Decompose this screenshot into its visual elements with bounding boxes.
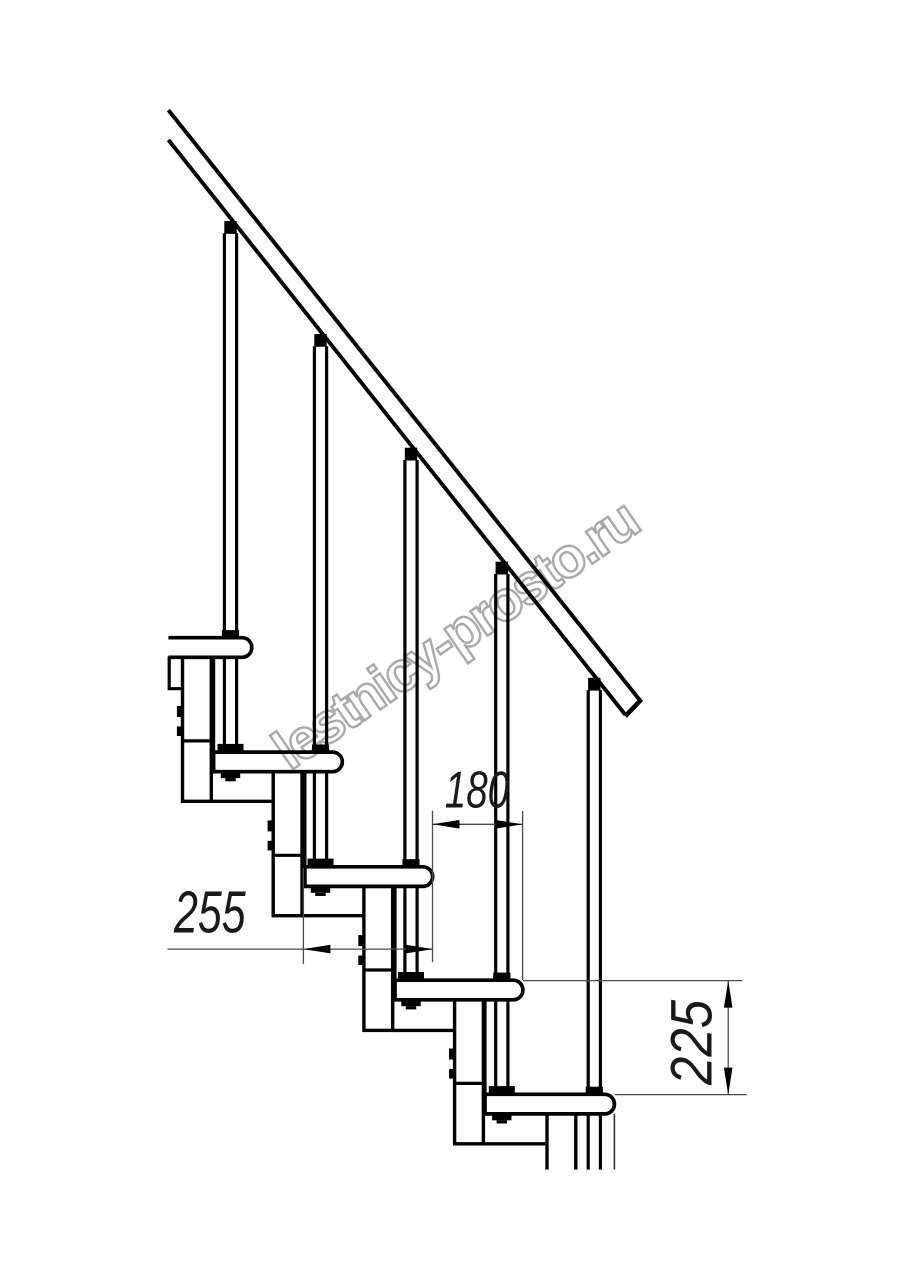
svg-text:180: 180 xyxy=(445,761,510,819)
svg-text:225: 225 xyxy=(658,999,724,1086)
svg-text:255: 255 xyxy=(173,879,246,945)
